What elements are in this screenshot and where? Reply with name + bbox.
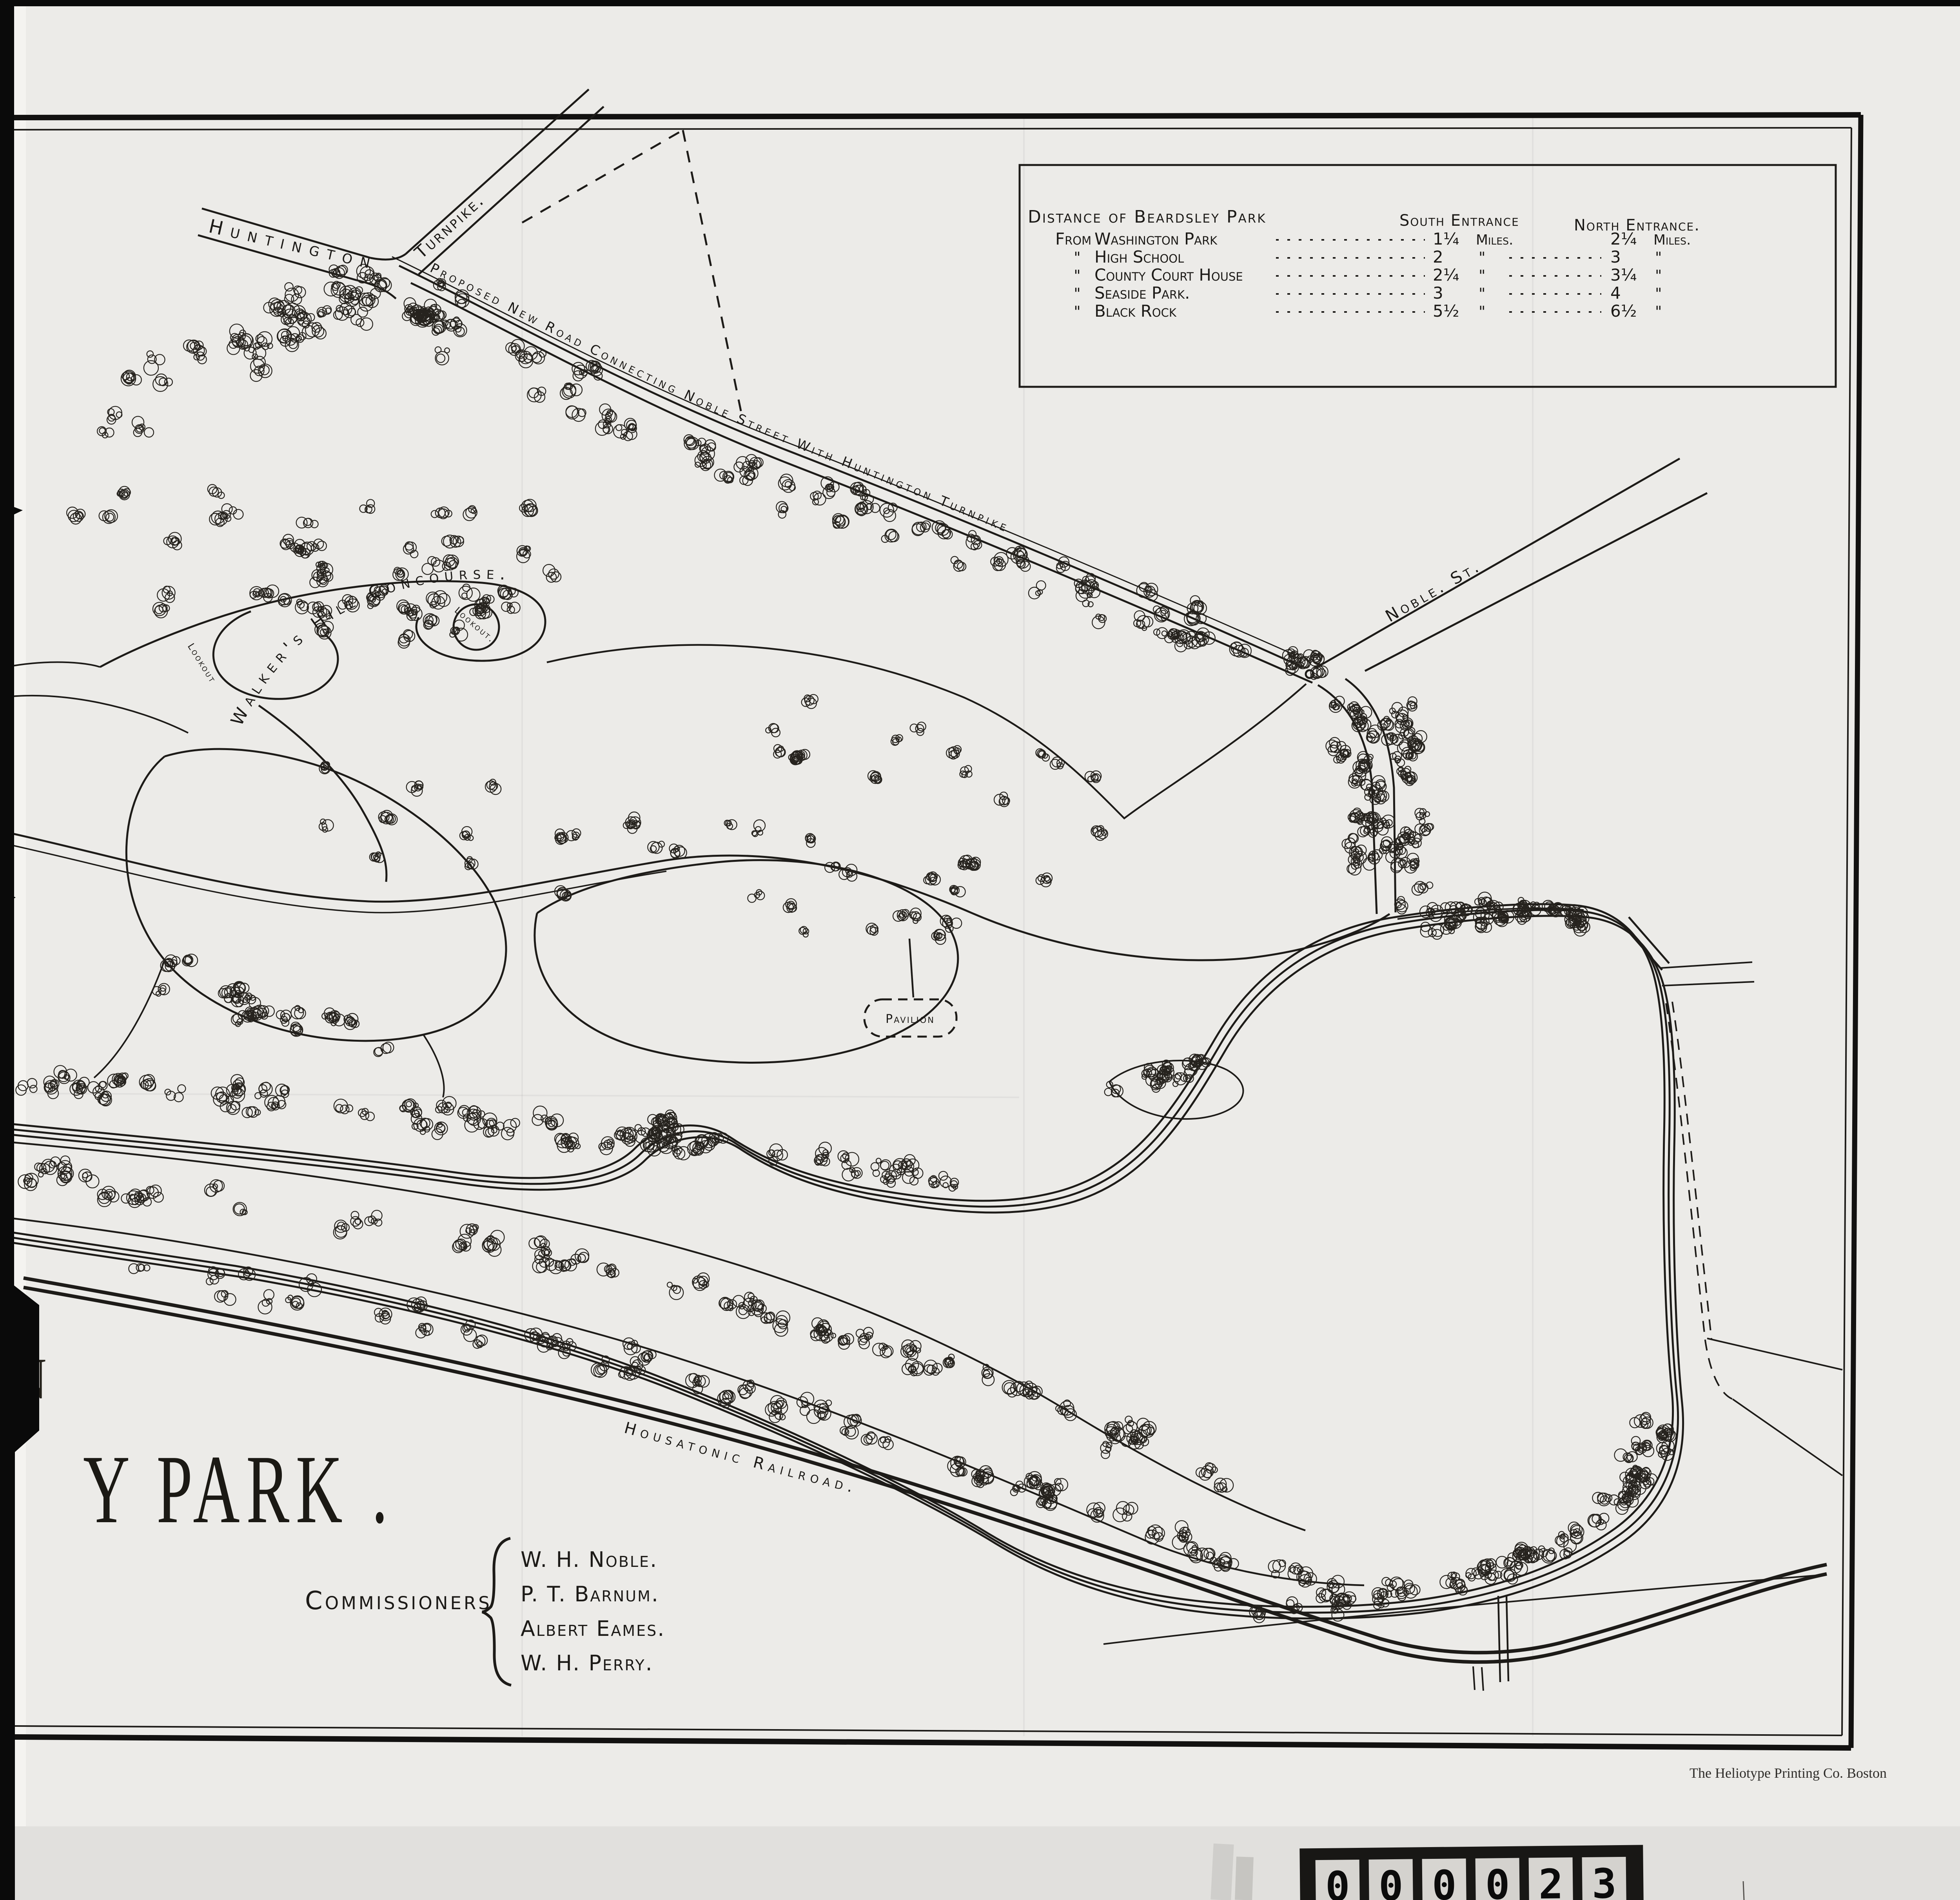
svg-text:": ": [1074, 267, 1080, 284]
counter-digit-cell: 0: [1369, 1859, 1413, 1900]
svg-text:": ": [1479, 249, 1485, 266]
photo-bottom-band: [14, 1826, 1960, 1900]
svg-text:2¼: 2¼: [1433, 265, 1459, 285]
film-tab: [1235, 1856, 1254, 1900]
commissioner-name: P. T. Barnum.: [521, 1582, 659, 1606]
svg-text:Seaside Park.: Seaside Park.: [1094, 283, 1190, 303]
svg-text:": ": [1479, 285, 1485, 302]
commissioner-name: Albert Eames.: [521, 1616, 665, 1641]
svg-text:": ": [1479, 267, 1485, 284]
distance-table-title: Distance of Beardsley Park: [1028, 207, 1267, 227]
svg-text:": ": [1074, 249, 1080, 266]
svg-text:2: 2: [1433, 247, 1443, 267]
map-title-fragment: Y PARK .: [83, 1435, 394, 1543]
svg-text:6½: 6½: [1610, 301, 1637, 321]
beardsley-park-map: Huntington Turnpike. Proposed New Road C…: [0, 0, 1960, 1900]
commissioner-name: W. H. Noble.: [521, 1547, 658, 1572]
svg-text:": ": [1074, 303, 1080, 320]
sheet-edge-highlight: [14, 6, 26, 1900]
svg-text:County Court House: County Court House: [1094, 265, 1243, 285]
svg-text:4: 4: [1610, 283, 1621, 303]
svg-text:Miles.: Miles.: [1476, 232, 1513, 248]
map-sheet: [14, 6, 1960, 1829]
svg-text:1¼: 1¼: [1433, 229, 1459, 248]
svg-text:3: 3: [1610, 247, 1621, 267]
printer-credit: The Heliotype Printing Co. Boston: [1690, 1765, 1887, 1781]
svg-text:2¼: 2¼: [1610, 229, 1637, 248]
film-tab: [1210, 1844, 1234, 1900]
svg-text:": ": [1655, 249, 1662, 266]
svg-text:": ": [1479, 303, 1485, 320]
col-south-entrance: South Entrance: [1399, 212, 1519, 230]
svg-text:0: 0: [1325, 1862, 1350, 1900]
svg-text:0: 0: [1432, 1861, 1457, 1900]
frame-counter-strip: 0 0 0 0 2 3: [1299, 1845, 1644, 1900]
svg-text:3¼: 3¼: [1610, 265, 1637, 285]
commissioner-name: W. H. Perry.: [521, 1651, 653, 1675]
svg-text:Washington Park: Washington Park: [1094, 229, 1218, 248]
counter-digit-cell: 2: [1529, 1857, 1573, 1900]
svg-text:Black Rock: Black Rock: [1094, 301, 1177, 321]
counter-digit-cell: 0: [1475, 1858, 1520, 1900]
counter-digit-cell: 3: [1582, 1857, 1626, 1900]
svg-text:5½: 5½: [1433, 301, 1459, 321]
counter-digit-cell: 0: [1316, 1860, 1360, 1900]
svg-text:Miles.: Miles.: [1653, 232, 1691, 248]
svg-text:High School: High School: [1094, 247, 1184, 267]
pavilion-label: Pavilion: [886, 1012, 935, 1026]
scanned-map-photo: Huntington Turnpike. Proposed New Road C…: [0, 0, 1960, 1900]
svg-text:3: 3: [1433, 283, 1443, 303]
svg-text:": ": [1655, 303, 1662, 320]
svg-text:": ": [1655, 267, 1662, 284]
svg-text:": ": [1074, 285, 1080, 302]
commissioners-label: Commissioners: [305, 1586, 492, 1615]
counter-digit-cell: 0: [1422, 1858, 1466, 1900]
svg-text:2: 2: [1538, 1860, 1563, 1900]
svg-text:0: 0: [1485, 1861, 1510, 1900]
svg-text:0: 0: [1378, 1862, 1403, 1900]
svg-text:": ": [1655, 285, 1662, 302]
svg-text:From: From: [1055, 229, 1091, 248]
svg-text:3: 3: [1592, 1860, 1617, 1900]
scratch-line: [1743, 1881, 1744, 1900]
